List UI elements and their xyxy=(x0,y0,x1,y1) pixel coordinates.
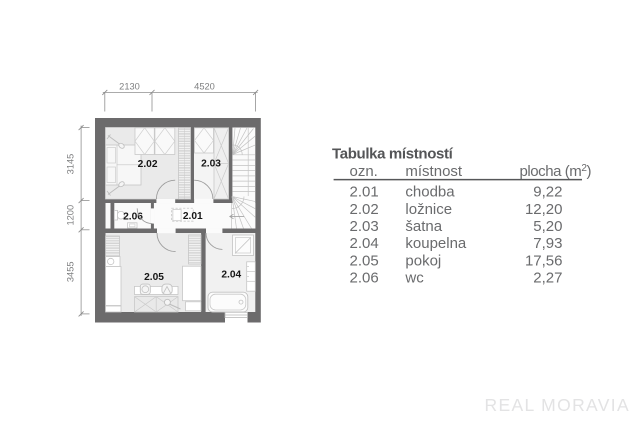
svg-text:2130: 2130 xyxy=(119,82,140,92)
svg-text:Tabulka místností: Tabulka místností xyxy=(332,145,454,162)
svg-text:3455: 3455 xyxy=(66,261,76,282)
svg-text:2.01: 2.01 xyxy=(350,184,379,201)
svg-text:místnost: místnost xyxy=(405,163,463,180)
svg-text:chodba: chodba xyxy=(405,184,455,201)
svg-text:ozn.: ozn. xyxy=(350,163,378,180)
svg-text:2.03: 2.03 xyxy=(350,218,379,235)
svg-text:2,27: 2,27 xyxy=(533,270,562,287)
svg-text:5,20: 5,20 xyxy=(533,218,562,235)
svg-text:9,22: 9,22 xyxy=(533,184,562,201)
svg-text:2.02: 2.02 xyxy=(350,201,379,218)
svg-text:ložnice: ložnice xyxy=(405,201,452,218)
svg-text:4520: 4520 xyxy=(194,82,215,92)
svg-text:plocha (m2): plocha (m2) xyxy=(520,163,592,180)
svg-text:šatna: šatna xyxy=(405,218,442,235)
svg-text:2.05: 2.05 xyxy=(144,272,164,283)
svg-text:12,20: 12,20 xyxy=(525,201,563,218)
svg-text:koupelna: koupelna xyxy=(405,235,467,252)
svg-text:pokoj: pokoj xyxy=(405,252,441,269)
svg-text:2.03: 2.03 xyxy=(201,158,221,169)
svg-text:REAL MORAVIA: REAL MORAVIA xyxy=(485,395,631,415)
svg-text:2.05: 2.05 xyxy=(350,252,379,269)
svg-text:7,93: 7,93 xyxy=(533,235,562,252)
svg-text:2.04: 2.04 xyxy=(350,235,379,252)
svg-text:2.02: 2.02 xyxy=(138,159,158,170)
svg-text:2.01: 2.01 xyxy=(183,211,203,222)
svg-text:2.06: 2.06 xyxy=(350,270,379,287)
svg-text:3145: 3145 xyxy=(66,154,76,175)
svg-text:wc: wc xyxy=(404,270,424,287)
svg-text:17,56: 17,56 xyxy=(525,252,563,269)
svg-text:2.04: 2.04 xyxy=(221,270,241,281)
svg-text:1200: 1200 xyxy=(66,205,76,226)
